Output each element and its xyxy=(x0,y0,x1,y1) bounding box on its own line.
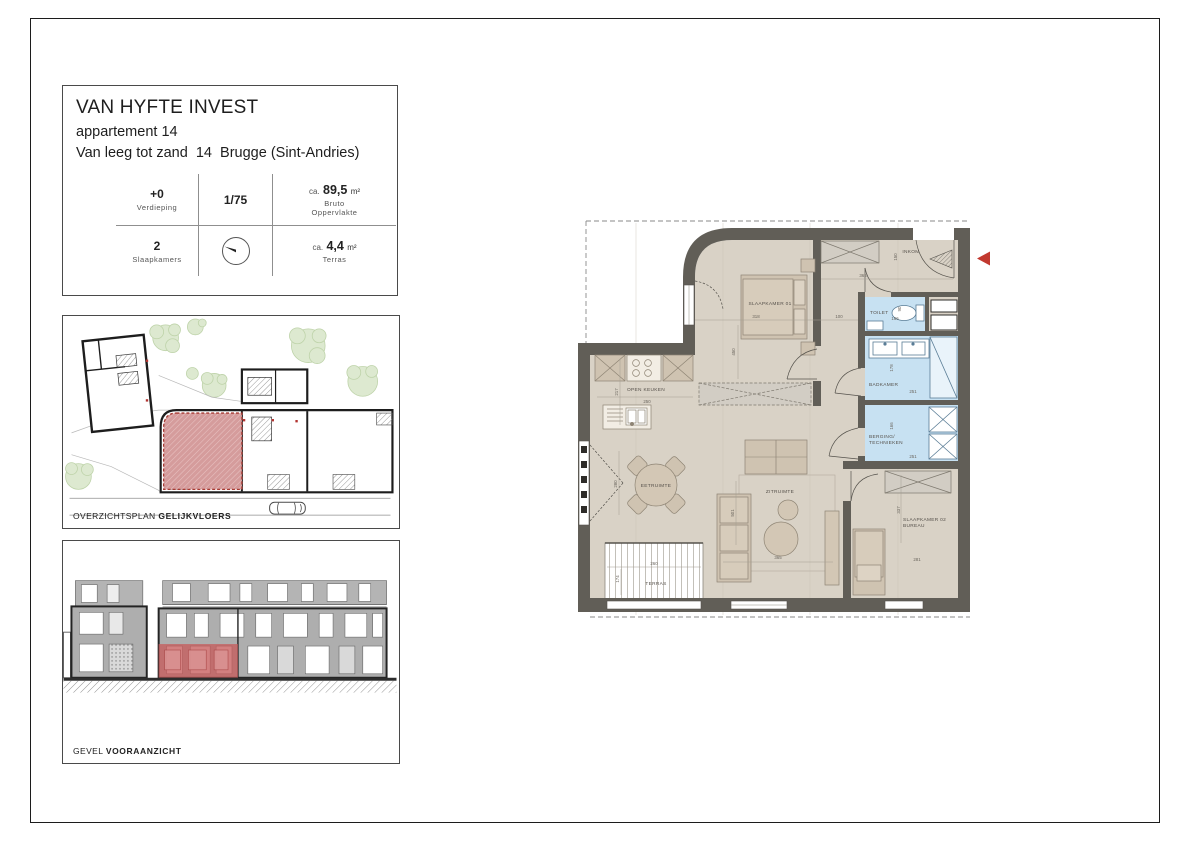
dim-berging-d: 166 xyxy=(889,422,894,430)
north-indicator-icon xyxy=(220,235,252,267)
company-name: VAN HYFTE INVEST xyxy=(76,97,384,119)
dim-slaapkamer2-d: 337 xyxy=(896,506,901,514)
window-below-slaapkamer2 xyxy=(885,601,923,609)
bed-slaapkamer2 xyxy=(853,529,885,595)
dim-berging-w: 251 xyxy=(909,454,917,459)
elevation-box: GEVEL VOORAANZICHT xyxy=(62,540,400,764)
label-slaapkamer1: SLAAPKAMER 01 xyxy=(748,301,791,307)
elevation-neighbour-sliver xyxy=(64,632,71,678)
room-terras xyxy=(605,543,703,600)
kitchen-counter xyxy=(595,355,693,381)
dim-keuken-w: 250 xyxy=(643,399,651,404)
dim-toilet-d: 90 xyxy=(897,306,902,311)
site-plan-svg xyxy=(63,316,397,526)
elevation-caption-prefix: GEVEL xyxy=(73,746,103,756)
floor-cell: +0 Verdieping xyxy=(116,174,198,225)
scale-value: 1/75 xyxy=(224,193,247,207)
north-cell xyxy=(198,225,272,276)
site-building-left xyxy=(83,335,154,432)
dim-corridor: 100 xyxy=(835,314,843,319)
label-toilet: TOILET xyxy=(870,310,889,316)
label-eetruimte: EETRUIMTE xyxy=(641,483,671,489)
info-grid: +0 Verdieping 1/75 ca. 89,5 m² Bruto Opp… xyxy=(116,174,384,276)
gross-area-label-1: Bruto xyxy=(324,199,344,208)
site-plan-caption: OVERZICHTSPLAN GELIJKVLOERS xyxy=(73,511,231,521)
wardrobe-slaapkamer1 xyxy=(699,383,811,405)
label-slaapkamer2-1: SLAAPKAMER 02 xyxy=(903,517,946,523)
elevation-caption: GEVEL VOORAANZICHT xyxy=(73,746,181,756)
dim-hall-d: 150 xyxy=(893,253,898,261)
site-building-middle xyxy=(242,369,307,403)
highlighted-unit-elevation xyxy=(159,644,238,678)
car-icon xyxy=(270,502,306,514)
terras-edge xyxy=(607,601,701,609)
shower xyxy=(930,337,957,398)
gross-area-value: 89,5 xyxy=(323,183,347,197)
floor-value: +0 xyxy=(150,187,164,201)
bedrooms-label: Slaapkamers xyxy=(132,255,181,264)
address-line: Van leeg tot zand 14 Brugge (Sint-Andrie… xyxy=(76,145,384,161)
scale-cell: 1/75 xyxy=(198,174,272,225)
floor-plan: SLAAPKAMER 01 318 450 100 365 150 INKOM … xyxy=(573,213,993,628)
label-inkom: INKOM xyxy=(902,249,919,255)
dim-eetruimte-d: 280 xyxy=(613,480,618,488)
site-plan-box: OVERZICHTSPLAN GELIJKVLOERS xyxy=(62,315,400,529)
dim-slaapkamer1-w: 318 xyxy=(752,314,760,319)
terrace-unit: m² xyxy=(347,243,356,252)
dim-badkamer-d: 178 xyxy=(889,364,894,372)
highlighted-unit xyxy=(164,413,242,489)
bathroom-vanity xyxy=(869,339,929,358)
wardrobe-hall xyxy=(821,241,879,263)
elevation-left-building xyxy=(71,581,146,678)
dim-keuken-d: 217 xyxy=(614,388,619,396)
dim-slaapkamer1-d: 450 xyxy=(731,348,736,356)
label-keuken: OPEN KEUKEN xyxy=(627,387,665,393)
floor-plan-svg: SLAAPKAMER 01 318 450 100 365 150 INKOM … xyxy=(573,213,993,628)
title-block: VAN HYFTE INVEST appartement 14 Van leeg… xyxy=(62,85,398,296)
gross-area-cell: ca. 89,5 m² Bruto Oppervlakte xyxy=(272,174,396,225)
terrace-cell: ca. 4,4 m² Terras xyxy=(272,225,396,276)
dim-zitruimte-d: 501 xyxy=(730,509,735,517)
site-caption-prefix: OVERZICHTSPLAN xyxy=(73,511,156,521)
architectural-sheet: { "title_block": { "company": "VAN HYFTE… xyxy=(0,0,1190,841)
label-badkamer: BADKAMER xyxy=(869,382,899,388)
elevation-ground xyxy=(64,678,397,693)
label-zitruimte: ZITRUIMTE xyxy=(766,489,794,495)
dim-slaapkamer2-w: 281 xyxy=(913,557,921,562)
site-caption-bold: GELIJKVLOERS xyxy=(158,511,231,521)
label-slaapkamer2-2: BUREAU xyxy=(903,523,925,529)
bedrooms-value: 2 xyxy=(154,239,161,253)
dim-terras-w: 260 xyxy=(650,561,658,566)
gross-area-label-2: Oppervlakte xyxy=(312,208,358,217)
label-berging-1: BERGING/ xyxy=(869,434,895,440)
hall-niche-shelves xyxy=(931,300,957,330)
dim-terras-d: 174 xyxy=(615,575,620,583)
terrace-prefix: ca. xyxy=(312,243,323,252)
elevation-caption-bold: VOORAANZICHT xyxy=(106,746,182,756)
terrace-label: Terras xyxy=(323,255,347,264)
terrace-value: 4,4 xyxy=(326,239,343,253)
gross-area-unit: m² xyxy=(351,187,360,196)
label-terras: TERRAS xyxy=(645,581,666,587)
wardrobe-slaapkamer2 xyxy=(885,471,951,493)
area-prefix: ca. xyxy=(309,187,320,196)
bedrooms-cell: 2 Slaapkamers xyxy=(116,225,198,276)
dim-hall-w: 365 xyxy=(859,273,867,278)
apartment-line: appartement 14 xyxy=(76,124,384,140)
entrance-arrow-icon xyxy=(977,252,990,266)
label-berging-2: TECHNIEKEN xyxy=(869,440,903,446)
floor-label: Verdieping xyxy=(137,203,177,212)
dim-toilet-w: 166 xyxy=(891,316,899,321)
kitchen-island-sink xyxy=(603,405,651,429)
dim-badkamer-w: 251 xyxy=(909,389,917,394)
dim-zitruimte-w: 365 xyxy=(774,555,782,560)
elevation-svg xyxy=(63,541,397,761)
